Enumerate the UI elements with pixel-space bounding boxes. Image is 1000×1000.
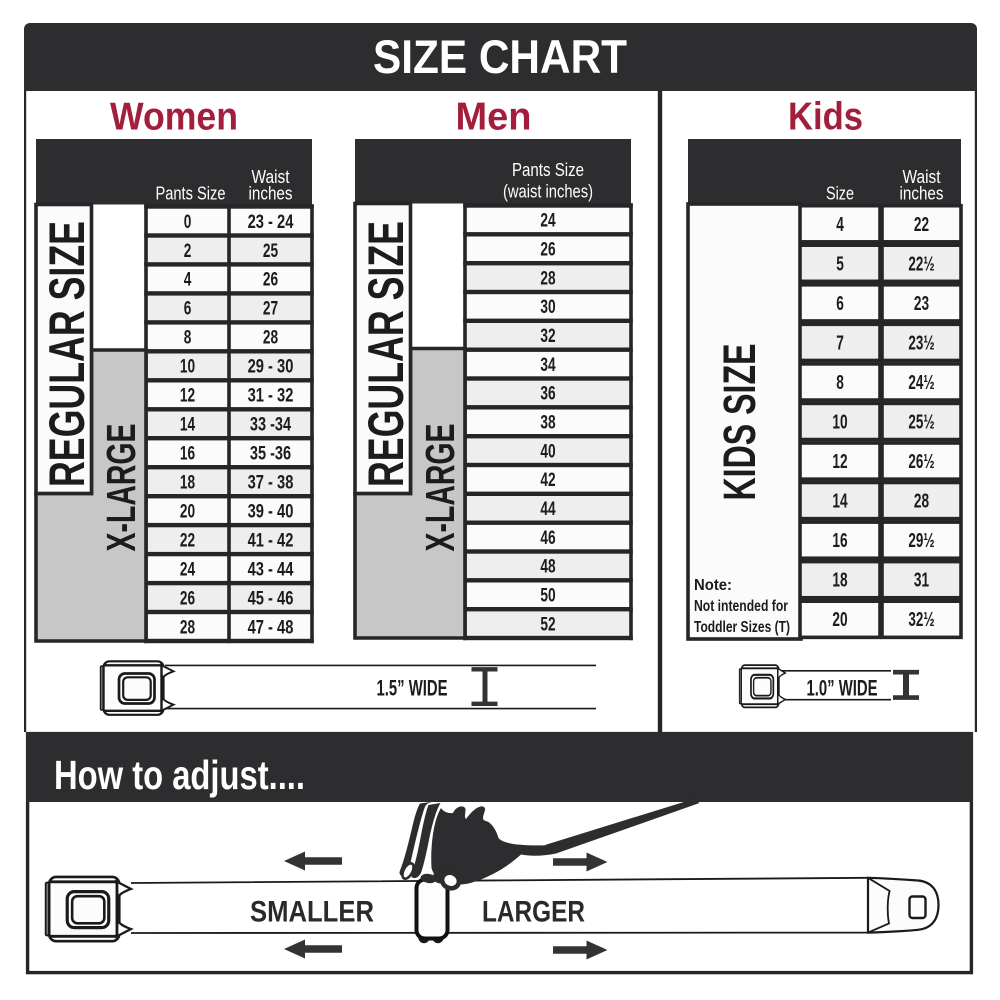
svg-text:26½: 26½ <box>908 451 934 473</box>
svg-text:48: 48 <box>540 557 555 578</box>
svg-text:25: 25 <box>263 241 279 262</box>
svg-text:33 -34: 33 -34 <box>250 415 292 436</box>
svg-text:30: 30 <box>540 297 555 318</box>
svg-text:6: 6 <box>836 293 844 315</box>
svg-text:31 - 32: 31 - 32 <box>248 386 294 407</box>
svg-text:2: 2 <box>184 241 192 262</box>
svg-text:14: 14 <box>180 415 196 436</box>
svg-text:14: 14 <box>832 491 848 513</box>
svg-text:23 - 24: 23 - 24 <box>248 212 294 233</box>
svg-text:16: 16 <box>832 530 847 552</box>
svg-text:32½: 32½ <box>908 609 934 631</box>
svg-text:SMALLER: SMALLER <box>250 896 374 929</box>
svg-text:39 - 40: 39 - 40 <box>248 501 294 522</box>
svg-text:41 - 42: 41 - 42 <box>248 530 294 551</box>
svg-text:Men: Men <box>456 96 532 139</box>
svg-text:42: 42 <box>540 470 555 491</box>
svg-text:1.0” WIDE: 1.0” WIDE <box>807 675 878 700</box>
svg-text:4: 4 <box>184 270 192 291</box>
svg-text:1.5” WIDE: 1.5” WIDE <box>377 676 448 701</box>
svg-text:36: 36 <box>540 384 555 405</box>
svg-text:7: 7 <box>836 332 844 354</box>
svg-text:52: 52 <box>540 614 555 635</box>
svg-text:Size: Size <box>826 183 854 204</box>
svg-text:37 - 38: 37 - 38 <box>248 473 294 494</box>
svg-text:Women: Women <box>110 96 238 139</box>
svg-text:28: 28 <box>914 491 929 513</box>
svg-text:8: 8 <box>836 372 844 394</box>
svg-text:34: 34 <box>540 355 556 376</box>
svg-text:38: 38 <box>540 413 555 434</box>
svg-text:22: 22 <box>180 530 195 551</box>
svg-text:28: 28 <box>540 268 555 289</box>
svg-text:27: 27 <box>263 299 278 320</box>
svg-text:29 - 30: 29 - 30 <box>248 357 294 378</box>
svg-text:50: 50 <box>540 586 555 607</box>
svg-text:12: 12 <box>832 451 847 473</box>
svg-text:31: 31 <box>914 570 929 592</box>
svg-text:6: 6 <box>184 299 192 320</box>
svg-text:inches: inches <box>249 183 293 204</box>
svg-text:Note:: Note: <box>694 577 732 594</box>
svg-text:28: 28 <box>263 328 278 349</box>
svg-text:24: 24 <box>180 559 196 580</box>
svg-text:X-LARGE: X-LARGE <box>417 424 463 552</box>
svg-text:47 - 48: 47 - 48 <box>248 617 294 638</box>
svg-text:24½: 24½ <box>908 372 934 394</box>
svg-text:Pants Size: Pants Size <box>512 159 584 180</box>
svg-text:32: 32 <box>540 326 555 347</box>
svg-text:16: 16 <box>180 444 195 465</box>
svg-text:KIDS SIZE: KIDS SIZE <box>714 344 765 501</box>
svg-text:(waist inches): (waist inches) <box>503 181 593 202</box>
svg-text:18: 18 <box>832 570 847 592</box>
svg-text:20: 20 <box>832 609 847 631</box>
svg-text:40: 40 <box>540 441 555 462</box>
svg-text:0: 0 <box>184 212 192 233</box>
svg-text:LARGER: LARGER <box>482 896 585 929</box>
svg-text:X-LARGE: X-LARGE <box>98 424 144 552</box>
svg-text:Kids: Kids <box>788 96 863 139</box>
svg-text:22: 22 <box>914 214 929 236</box>
svg-text:22½: 22½ <box>908 253 934 275</box>
svg-text:29½: 29½ <box>908 530 934 552</box>
svg-text:Toddler Sizes (T): Toddler Sizes (T) <box>694 619 790 636</box>
svg-text:4: 4 <box>836 214 844 236</box>
svg-text:26: 26 <box>263 270 278 291</box>
svg-text:8: 8 <box>184 328 192 349</box>
svg-text:44: 44 <box>540 499 556 520</box>
svg-text:How to adjust....: How to adjust.... <box>54 752 305 798</box>
svg-text:45 - 46: 45 - 46 <box>248 588 294 609</box>
svg-text:10: 10 <box>832 412 847 434</box>
svg-text:23½: 23½ <box>908 332 934 354</box>
svg-text:26: 26 <box>540 240 555 261</box>
svg-text:Not intended for: Not intended for <box>694 598 788 615</box>
svg-text:REGULAR SIZE: REGULAR SIZE <box>39 221 95 487</box>
svg-text:REGULAR SIZE: REGULAR SIZE <box>358 221 414 487</box>
svg-text:10: 10 <box>180 357 195 378</box>
svg-text:5: 5 <box>836 253 844 275</box>
svg-text:20: 20 <box>180 501 195 522</box>
svg-text:46: 46 <box>540 528 555 549</box>
svg-text:12: 12 <box>180 386 195 407</box>
svg-text:43 - 44: 43 - 44 <box>248 559 294 580</box>
svg-text:Pants Size: Pants Size <box>156 183 226 204</box>
svg-text:25½: 25½ <box>908 412 934 434</box>
svg-text:23: 23 <box>914 293 929 315</box>
svg-text:26: 26 <box>180 588 195 609</box>
svg-text:18: 18 <box>180 473 195 494</box>
svg-text:SIZE CHART: SIZE CHART <box>373 31 627 84</box>
svg-text:35 -36: 35 -36 <box>250 444 291 465</box>
svg-text:24: 24 <box>540 211 556 232</box>
svg-text:inches: inches <box>900 183 944 204</box>
svg-text:28: 28 <box>180 617 195 638</box>
